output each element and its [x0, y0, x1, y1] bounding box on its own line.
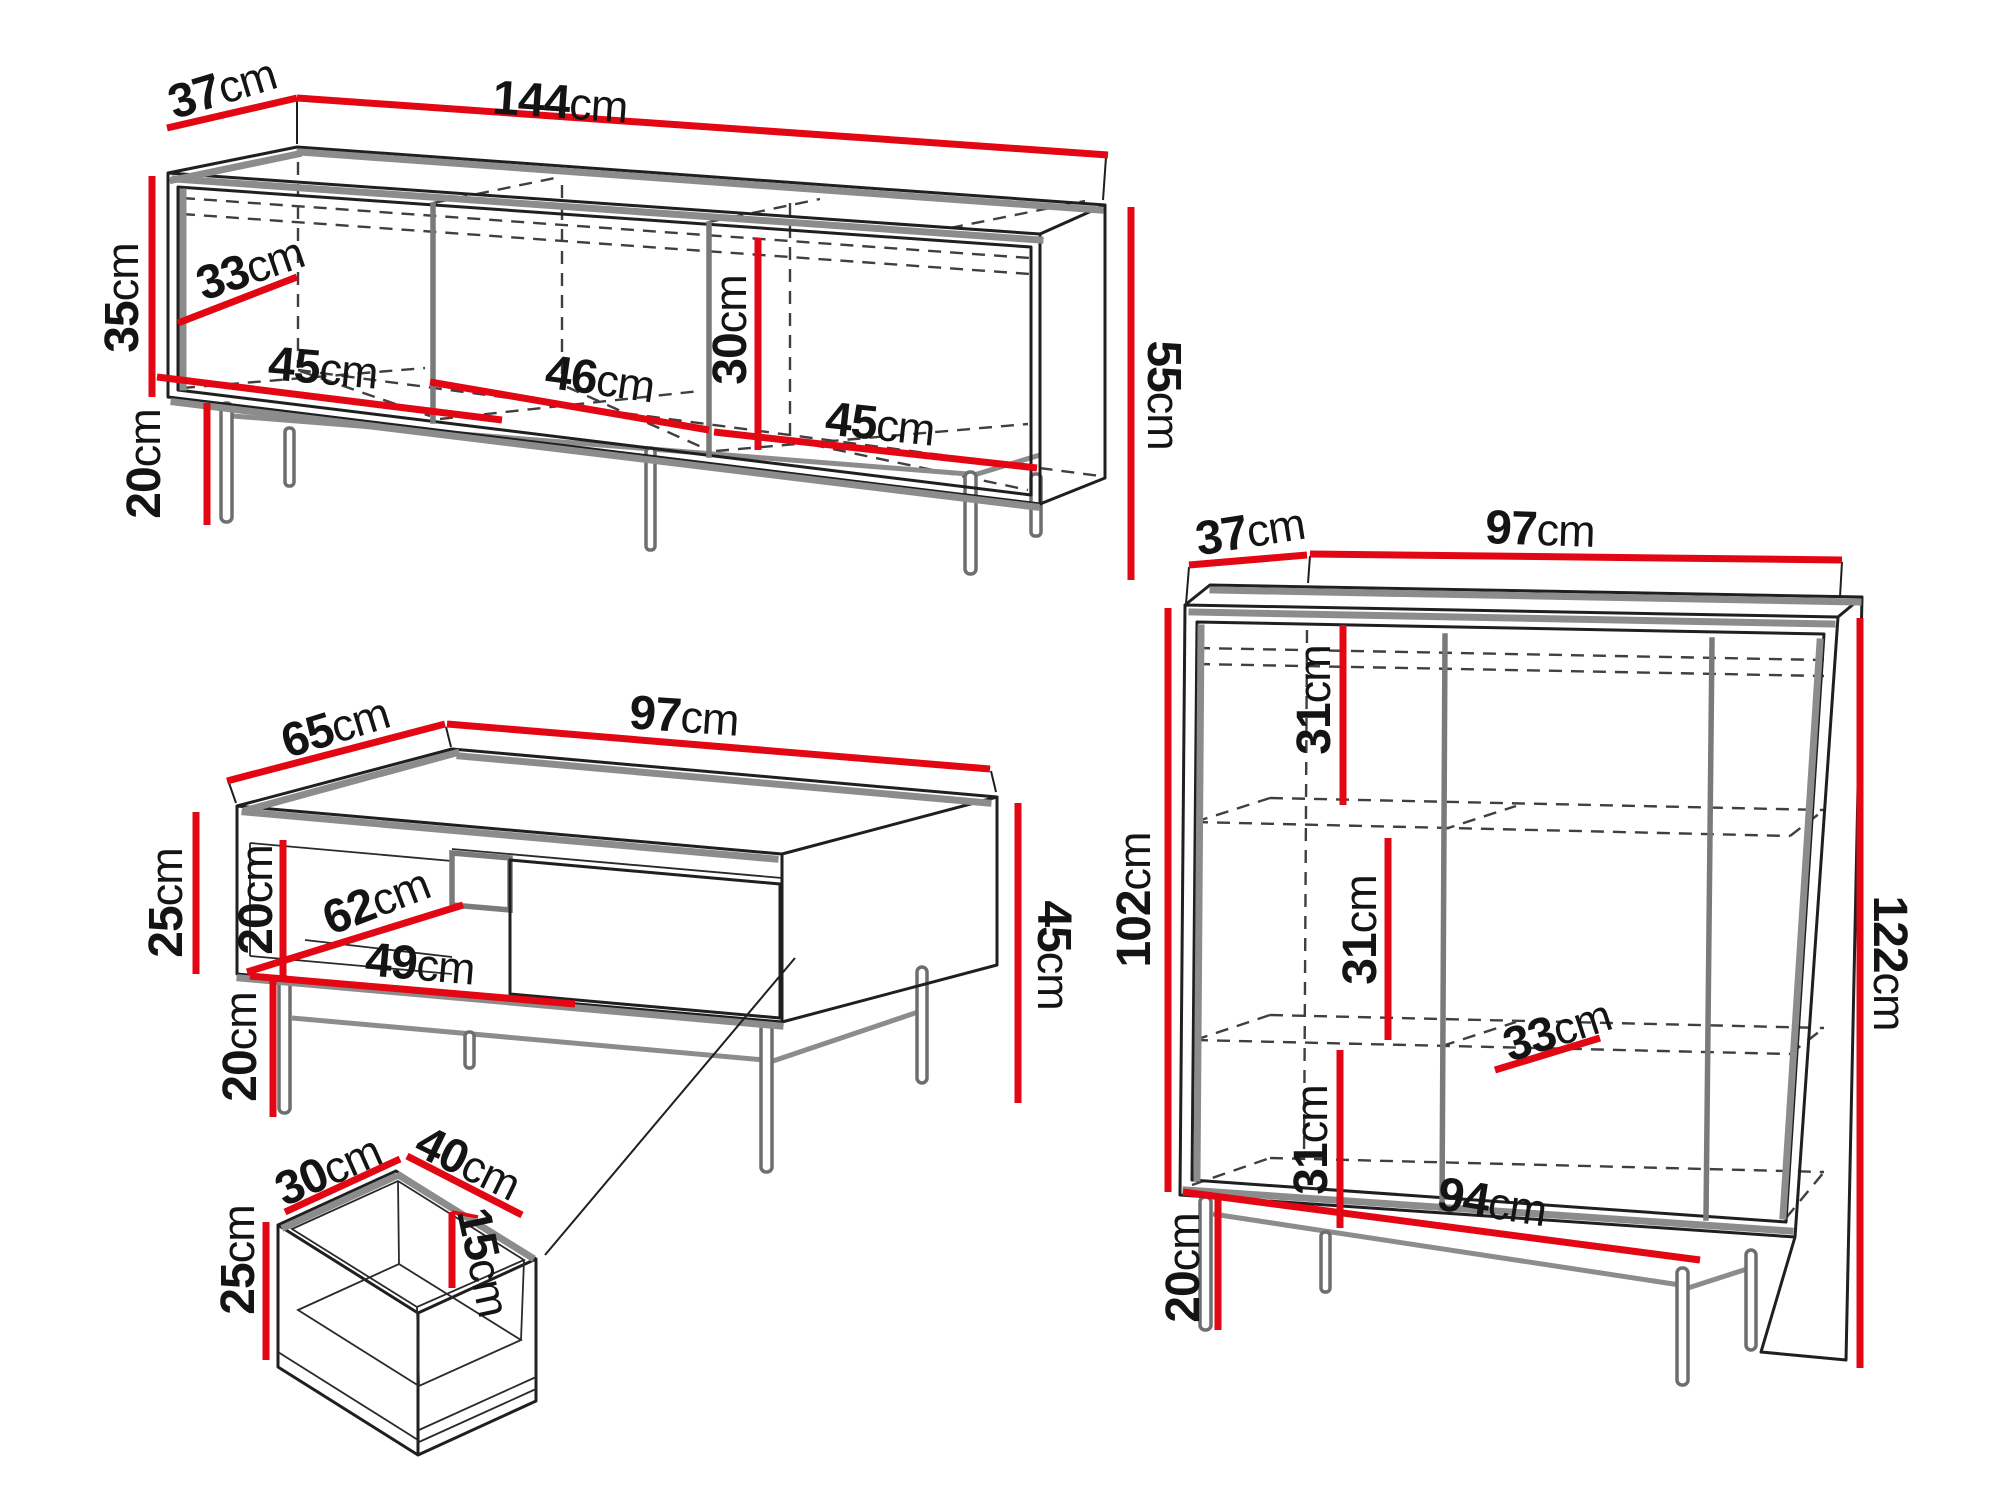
- tv-ticks: [297, 100, 1106, 200]
- drawer-callout-line: [545, 958, 795, 1255]
- dimension-label-table-leg-height: 20cm: [214, 992, 267, 1101]
- dimension-label-tv-width: 144cm: [491, 71, 629, 133]
- dimension-label-cabinet-shelf-depth: 33cm: [1497, 988, 1617, 1072]
- table-handle-notch: [452, 853, 510, 910]
- dimension-label-table-width: 97cm: [628, 686, 741, 747]
- cabinet-leg-back-right: [1746, 1250, 1756, 1350]
- table-leg-front-left: [279, 977, 290, 1113]
- dimension-label-table-opening-height: 20cm: [230, 845, 283, 954]
- tv-leg-front-left: [221, 403, 232, 522]
- table-leg-front-right: [761, 1024, 772, 1172]
- dimension-label-cabinet-width: 97cm: [1484, 501, 1595, 558]
- dimension-label-cabinet-compartment-middle: 31cm: [1334, 875, 1387, 984]
- table-leg-stub: [465, 1032, 474, 1068]
- table-legs: [279, 967, 927, 1172]
- drawer-detail-drawing: 30cm 40cm 25cm 15cm: [212, 1115, 537, 1455]
- dimension-label-table-opening-width: 49cm: [363, 933, 477, 995]
- dimension-label-drawer-height: 25cm: [212, 1205, 265, 1314]
- dimension-label-table-body-height: 25cm: [140, 848, 193, 957]
- dimension-label-cabinet-total-height: 122cm: [1864, 895, 1917, 1030]
- dimension-label-tv-section-left: 45cm: [266, 337, 380, 399]
- cabinet-leg-stub: [1321, 1232, 1330, 1292]
- table-drawer-front-panel: [510, 860, 780, 1018]
- tv-stand-drawing: 37cm 144cm 35cm 33cm 45cm 46cm 30cm 45cm…: [96, 47, 1191, 580]
- diagram-canvas: 37cm 144cm 35cm 33cm 45cm 46cm 30cm 45cm…: [0, 0, 2000, 1499]
- dimension-label-cabinet-compartment-bottom: 31cm: [1285, 1085, 1338, 1194]
- dimension-label-cabinet-compartment-top: 31cm: [1288, 645, 1341, 754]
- dimension-label-tv-opening-height: 30cm: [704, 275, 757, 384]
- dimension-label-drawer-width: 40cm: [407, 1115, 529, 1211]
- dimension-label-tv-interior-height: 35cm: [96, 243, 149, 352]
- cabinet-leg-front-right: [1677, 1268, 1688, 1385]
- dimension-label-tv-leg-height: 20cm: [118, 409, 171, 518]
- cabinet-drawing: 37cm 97cm 102cm 122cm 31cm 31cm 31cm 33c…: [1108, 496, 1917, 1385]
- cabinet-body-outline: [1180, 585, 1862, 1360]
- dimension-label-cabinet-body-height: 102cm: [1108, 832, 1161, 967]
- cabinet-dividers: [1442, 636, 1712, 1218]
- dimension-label-tv-total-height: 55cm: [1138, 340, 1191, 449]
- table-base-rails: [292, 1010, 924, 1062]
- dimension-label-drawer-interior-depth: 15cm: [447, 1203, 522, 1321]
- dimension-label-cabinet-leg-height: 20cm: [1157, 1213, 1210, 1322]
- dimension-label-table-total-height: 45cm: [1028, 900, 1081, 1009]
- tv-leg-stub: [285, 428, 294, 486]
- dimension-line-tv-width: [297, 98, 1108, 155]
- furniture-dimension-diagram: 37cm 144cm 35cm 33cm 45cm 46cm 30cm 45cm…: [0, 0, 2000, 1499]
